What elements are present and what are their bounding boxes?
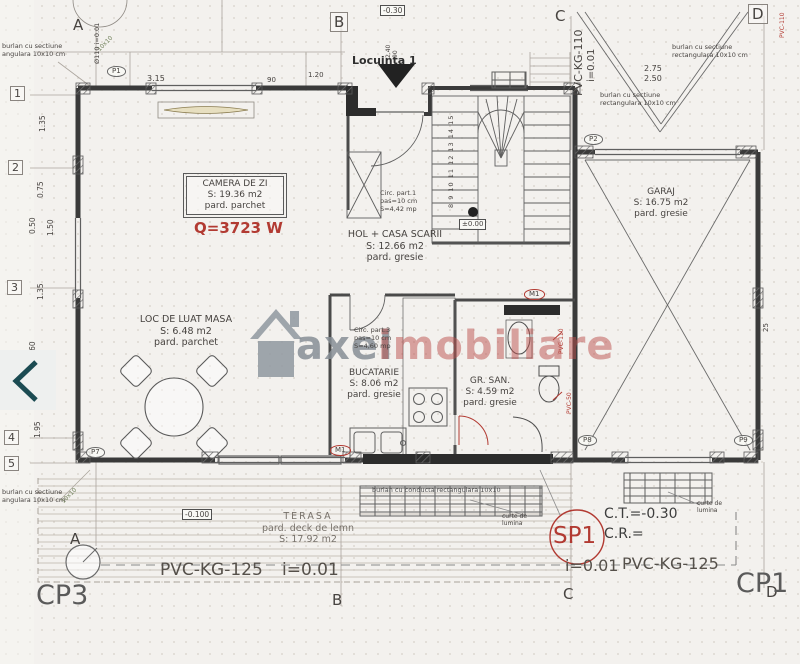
grid-top-a: A bbox=[73, 16, 83, 34]
dim-garage-2: 2.50 bbox=[644, 74, 662, 84]
marker-p9: P9 bbox=[734, 435, 753, 446]
corner-pipe-label: PVC-110 bbox=[779, 12, 786, 38]
stair-note: Circ. part.1pas=10 cmS=4,42 mp bbox=[380, 190, 417, 214]
grid-bottom-a: A bbox=[70, 530, 80, 548]
room-gr-san: GR. SAN.S: 4.59 m2pard. gresie bbox=[456, 376, 524, 409]
grid-top-b: B bbox=[330, 12, 348, 32]
room-terasa: TERASApard. deck de lemnS: 17.92 m2 bbox=[228, 511, 388, 546]
marker-p7: P7 bbox=[86, 447, 105, 458]
marker-m1-bath: M1 bbox=[524, 289, 545, 300]
level-entry: -0.30 bbox=[380, 5, 405, 16]
grid-top-d: D bbox=[748, 4, 768, 24]
heat-load: Q=3723 W bbox=[194, 219, 283, 237]
floorplan-page: axel imobiliare A B C D A B C D 1 2 3 4 … bbox=[0, 0, 800, 664]
downpipe-label: Ø110 i=0.01 bbox=[94, 23, 102, 64]
dim-left-4: 1.50 bbox=[46, 219, 55, 236]
grid-top-c: C bbox=[555, 7, 565, 25]
dim-top-1: 3.15 bbox=[147, 74, 165, 84]
marker-p8: P8 bbox=[578, 435, 597, 446]
sewer-left-label: PVC-KG-125 bbox=[160, 560, 263, 581]
cr-label: C.R.= bbox=[604, 526, 644, 543]
sewer-right-label: PVC-KG-125 bbox=[622, 554, 719, 574]
light-court-label-right: curte delumina bbox=[697, 500, 722, 515]
level-terrace: -0.100 bbox=[182, 509, 212, 520]
roof-drain-pipe-label: PVC-KG-110 bbox=[572, 29, 585, 96]
marker-p1: P1 bbox=[107, 66, 126, 77]
grid-bottom-c: C bbox=[563, 585, 573, 603]
room-hol-casa-scarii: HOL + CASA SCARIIS: 12.66 m2pard. gresie bbox=[328, 229, 462, 264]
sp1-label: SP1 bbox=[553, 522, 596, 550]
grid-bottom-b: B bbox=[332, 591, 342, 609]
room-loc-de-luat-masa: LOC DE LUAT MASAS: 6.48 m2pard. parchet bbox=[118, 314, 254, 349]
dim-left-5: 1.35 bbox=[36, 283, 45, 300]
downspout-note-topright: burlan cu sectiunerectangulara 10x10 cm bbox=[672, 44, 748, 60]
dim-left-3: 0.50 bbox=[28, 217, 37, 234]
grate-note: burlan cu conducta rectangulara 10x10 bbox=[372, 487, 501, 495]
grid-row-5: 5 bbox=[4, 456, 19, 471]
grid-row-1: 1 bbox=[10, 86, 25, 101]
entrance-arrow bbox=[378, 64, 415, 88]
bath-pipe-b-label: PVC-50 bbox=[566, 392, 573, 414]
dining-table bbox=[119, 354, 229, 460]
dim-left-2: 0.75 bbox=[36, 181, 45, 198]
downspout-note-topleft: burlan cu sectiuneangulara 10x10 cm bbox=[2, 43, 65, 59]
ct-label: C.T.=-0.30 bbox=[604, 506, 678, 523]
dim-top-2: 90 bbox=[267, 76, 276, 85]
grid-row-3: 3 bbox=[7, 280, 22, 295]
light-court-label-center: curte delumina bbox=[502, 513, 527, 528]
garage-lines bbox=[577, 12, 750, 450]
marker-p2: P2 bbox=[584, 134, 603, 145]
bath-pipe-a-label: PVC-110 bbox=[558, 328, 565, 354]
window-sill bbox=[158, 102, 254, 118]
grid-row-4: 4 bbox=[4, 430, 19, 445]
house-icon bbox=[250, 301, 302, 377]
shaft bbox=[347, 152, 381, 218]
dim-garage-1: 2.75 bbox=[644, 64, 662, 74]
cp1-label: CP1 bbox=[736, 568, 788, 601]
dim-left-7: 1.95 bbox=[33, 421, 42, 438]
dim-left-1: 1.35 bbox=[38, 115, 47, 132]
downspout-note-bottomleft: burlan cu sectiuneangulara 10x10 cm bbox=[2, 489, 65, 505]
sewer-left-slope-label: i=0.01 bbox=[282, 560, 339, 581]
grid-row-2: 2 bbox=[8, 160, 23, 175]
room-garaj: GARAJS: 16.75 m2pard. gresie bbox=[618, 187, 704, 220]
chevron-left-icon bbox=[0, 350, 56, 410]
level-zero: ±0.00 bbox=[459, 219, 486, 230]
downspout-note-garage: burlan cu sectiunerectangulara 10x10 cm bbox=[600, 92, 676, 108]
roof-drain-slope-label: i=0.01 bbox=[586, 49, 598, 82]
room-camera-de-zi: CAMERA DE ZIS: 19.36 m2pard. parchet bbox=[186, 176, 284, 215]
marker-m1-kitchen: M1 bbox=[330, 445, 351, 456]
watermark-brand-red: imobiliare bbox=[378, 322, 614, 371]
room-bucatarie: BUCATARIES: 8.06 m2pard. gresie bbox=[334, 368, 414, 401]
sewer-right-slope-label: i=0.01 bbox=[565, 556, 618, 576]
dim-top-3: 1.20 bbox=[308, 71, 324, 80]
cp3-label: CP3 bbox=[36, 580, 88, 613]
dim-right-1: 25 bbox=[762, 323, 771, 332]
hall-note: Circ. part.3pas=10 cmS=4,60 mp bbox=[354, 327, 391, 351]
carousel-prev-button[interactable] bbox=[0, 350, 56, 410]
dim-entrance-door: 2.4090 bbox=[385, 45, 400, 58]
stair-step-numbers: 8 9 10 11 12 13 14 15 bbox=[448, 115, 456, 208]
